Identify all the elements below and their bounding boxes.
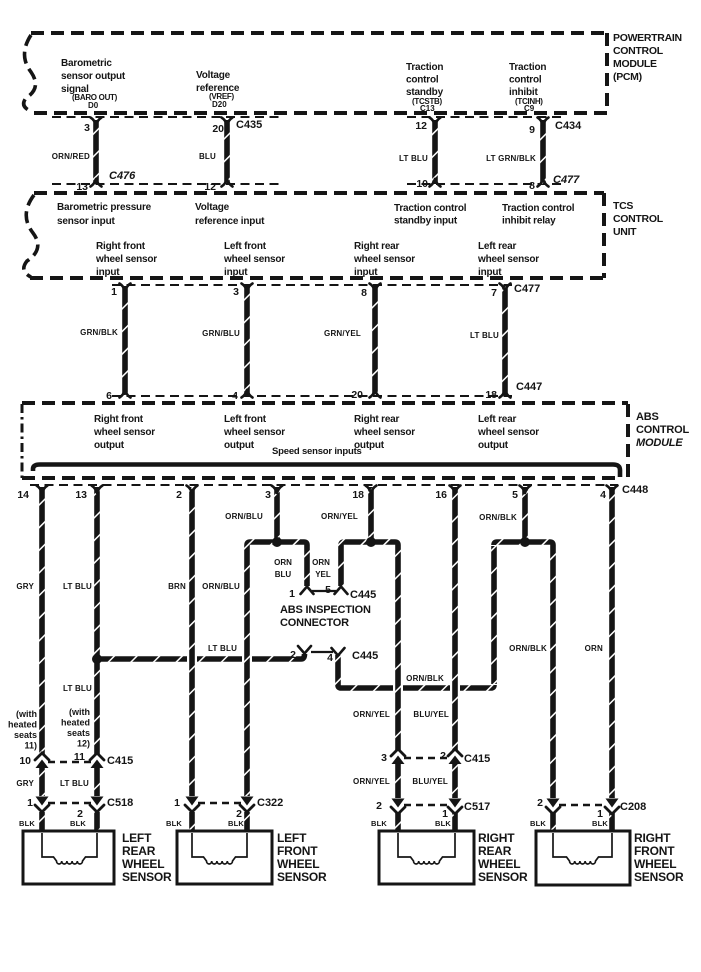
svg-text:18: 18 — [352, 489, 364, 501]
svg-text:GRN/YEL: GRN/YEL — [324, 329, 361, 338]
svg-text:wheel sensor: wheel sensor — [223, 254, 285, 265]
svg-text:wheel sensor: wheel sensor — [223, 427, 285, 438]
svg-text:ORN/YEL: ORN/YEL — [353, 710, 390, 719]
svg-text:C415: C415 — [464, 753, 490, 765]
svg-text:ORN: ORN — [585, 644, 603, 653]
svg-text:C517: C517 — [464, 801, 490, 813]
svg-text:13: 13 — [76, 181, 88, 193]
svg-text:GRY: GRY — [16, 582, 34, 591]
svg-text:12: 12 — [415, 120, 427, 132]
svg-text:3: 3 — [84, 122, 90, 134]
svg-text:12: 12 — [204, 181, 216, 193]
svg-text:C13: C13 — [420, 104, 435, 113]
svg-text:9: 9 — [529, 124, 535, 136]
svg-text:C208: C208 — [620, 801, 646, 813]
svg-text:Right front: Right front — [96, 241, 146, 252]
svg-text:11): 11) — [24, 741, 37, 751]
svg-text:16: 16 — [435, 489, 447, 501]
svg-text:4: 4 — [232, 390, 238, 402]
svg-text:C445: C445 — [352, 650, 378, 662]
svg-text:10: 10 — [19, 755, 31, 767]
svg-text:ORN/YEL: ORN/YEL — [353, 777, 390, 786]
svg-text:C477: C477 — [553, 174, 580, 186]
svg-text:2: 2 — [290, 649, 296, 661]
svg-text:REAR: REAR — [122, 844, 156, 858]
svg-text:standby input: standby input — [394, 216, 458, 227]
svg-text:C445: C445 — [350, 589, 376, 601]
svg-text:BLU/YEL: BLU/YEL — [412, 777, 448, 786]
svg-text:C448: C448 — [622, 484, 648, 496]
svg-text:SENSOR: SENSOR — [277, 870, 327, 884]
svg-text:CONTROL: CONTROL — [613, 213, 664, 225]
svg-text:C447: C447 — [516, 381, 542, 393]
svg-text:8: 8 — [361, 287, 367, 299]
svg-text:18: 18 — [485, 389, 497, 401]
svg-text:output: output — [94, 440, 125, 451]
svg-text:wheel sensor: wheel sensor — [353, 254, 415, 265]
svg-text:ORN/BLU: ORN/BLU — [202, 582, 240, 591]
svg-text:GRN/BLU: GRN/BLU — [202, 329, 240, 338]
svg-text:C477: C477 — [514, 283, 540, 295]
svg-text:POWERTRAIN: POWERTRAIN — [613, 32, 682, 44]
svg-text:Voltage: Voltage — [196, 70, 231, 81]
svg-text:WHEEL: WHEEL — [277, 857, 319, 871]
svg-text:BRN: BRN — [168, 582, 186, 591]
svg-text:sensor output: sensor output — [61, 71, 126, 82]
svg-text:REAR: REAR — [478, 844, 512, 858]
svg-text:C434: C434 — [555, 120, 582, 132]
svg-text:20: 20 — [212, 123, 224, 135]
svg-text:BLK: BLK — [19, 819, 35, 828]
svg-text:input: input — [224, 267, 248, 278]
svg-text:3: 3 — [381, 752, 387, 764]
svg-text:output: output — [478, 440, 509, 451]
svg-text:C476: C476 — [109, 170, 136, 182]
svg-text:SENSOR: SENSOR — [478, 870, 528, 884]
svg-text:Traction: Traction — [509, 62, 546, 73]
svg-text:BLU: BLU — [275, 570, 292, 579]
svg-text:wheel sensor: wheel sensor — [477, 254, 539, 265]
svg-text:seats: seats — [14, 730, 37, 740]
svg-text:ORN/BLK: ORN/BLK — [406, 674, 444, 683]
svg-text:ORN/BLK: ORN/BLK — [479, 513, 517, 522]
svg-text:C435: C435 — [236, 119, 262, 131]
svg-text:1: 1 — [174, 797, 180, 809]
svg-text:RIGHT: RIGHT — [634, 831, 671, 845]
svg-text:Left rear: Left rear — [478, 241, 517, 252]
svg-text:WHEEL: WHEEL — [478, 857, 520, 871]
svg-text:control: control — [406, 75, 439, 86]
svg-text:BLK: BLK — [228, 819, 244, 828]
svg-text:WHEEL: WHEEL — [634, 857, 676, 871]
svg-text:heated: heated — [8, 720, 37, 730]
svg-text:wheel sensor: wheel sensor — [95, 254, 157, 265]
svg-text:RIGHT: RIGHT — [478, 831, 515, 845]
svg-text:WHEEL: WHEEL — [122, 857, 164, 871]
svg-text:wheel sensor: wheel sensor — [477, 427, 539, 438]
svg-text:SENSOR: SENSOR — [634, 870, 684, 884]
svg-text:FRONT: FRONT — [277, 844, 318, 858]
svg-text:TCS: TCS — [613, 200, 633, 212]
svg-text:Traction control: Traction control — [502, 203, 575, 214]
svg-text:LT GRN/BLK: LT GRN/BLK — [486, 154, 536, 163]
svg-text:C415: C415 — [107, 755, 133, 767]
svg-text:MODULE: MODULE — [636, 437, 683, 449]
svg-text:14: 14 — [17, 489, 29, 501]
svg-text:10: 10 — [416, 178, 428, 190]
svg-text:C518: C518 — [107, 797, 133, 809]
svg-text:BLK: BLK — [530, 819, 546, 828]
svg-text:BLK: BLK — [371, 819, 387, 828]
svg-text:UNIT: UNIT — [613, 226, 637, 238]
svg-text:CONTROL: CONTROL — [636, 424, 689, 436]
svg-text:4: 4 — [327, 652, 333, 664]
svg-text:20: 20 — [351, 389, 363, 401]
svg-text:ORN/RED: ORN/RED — [52, 152, 90, 161]
svg-text:Speed sensor inputs: Speed sensor inputs — [272, 446, 362, 457]
svg-text:5: 5 — [512, 489, 518, 501]
svg-text:3: 3 — [265, 489, 271, 501]
svg-text:Right rear: Right rear — [354, 241, 400, 252]
svg-text:ORN/BLK: ORN/BLK — [509, 644, 547, 653]
svg-text:(PCM): (PCM) — [613, 71, 642, 83]
svg-text:8: 8 — [529, 180, 535, 192]
svg-text:LT BLU: LT BLU — [470, 331, 499, 340]
svg-text:6: 6 — [106, 390, 112, 402]
svg-text:LT BLU: LT BLU — [60, 779, 89, 788]
svg-text:inhibit relay: inhibit relay — [502, 216, 556, 227]
svg-text:BLK: BLK — [70, 819, 86, 828]
svg-text:Barometric pressure: Barometric pressure — [57, 202, 152, 213]
svg-text:input: input — [478, 267, 502, 278]
svg-text:ORN: ORN — [312, 558, 330, 567]
svg-text:wheel sensor: wheel sensor — [353, 427, 415, 438]
svg-text:LEFT: LEFT — [122, 831, 152, 845]
svg-text:input: input — [354, 267, 378, 278]
svg-text:2: 2 — [537, 797, 543, 809]
svg-text:GRN/BLK: GRN/BLK — [80, 328, 118, 337]
svg-text:CONTROL: CONTROL — [613, 45, 664, 57]
svg-text:LT BLU: LT BLU — [63, 684, 92, 693]
svg-text:2: 2 — [440, 750, 446, 762]
svg-text:seats: seats — [67, 728, 90, 738]
svg-text:(with: (with — [16, 709, 37, 719]
svg-text:CONNECTOR: CONNECTOR — [280, 617, 349, 629]
svg-text:Voltage: Voltage — [195, 202, 230, 213]
svg-text:12): 12) — [77, 739, 90, 749]
svg-text:control: control — [509, 75, 542, 86]
svg-text:1: 1 — [289, 588, 295, 600]
svg-text:heated: heated — [61, 718, 90, 728]
svg-text:D20: D20 — [212, 100, 227, 109]
svg-text:Barometric: Barometric — [61, 58, 112, 69]
svg-text:3: 3 — [233, 286, 239, 298]
svg-text:1: 1 — [27, 797, 33, 809]
svg-text:LEFT: LEFT — [277, 831, 307, 845]
svg-text:2: 2 — [376, 800, 382, 812]
svg-text:C9: C9 — [524, 104, 535, 113]
svg-text:ORN/YEL: ORN/YEL — [321, 512, 358, 521]
svg-text:Left rear: Left rear — [478, 414, 517, 425]
svg-text:Traction control: Traction control — [394, 203, 467, 214]
svg-text:output: output — [224, 440, 255, 451]
svg-text:wheel sensor: wheel sensor — [93, 427, 155, 438]
svg-text:BLU: BLU — [199, 152, 216, 161]
svg-text:D0: D0 — [88, 101, 99, 110]
svg-text:BLK: BLK — [435, 819, 451, 828]
svg-text:C322: C322 — [257, 797, 283, 809]
svg-text:BLU/YEL: BLU/YEL — [413, 710, 449, 719]
svg-text:ORN: ORN — [274, 558, 292, 567]
svg-text:5: 5 — [325, 584, 331, 596]
svg-text:BLK: BLK — [166, 819, 182, 828]
svg-text:7: 7 — [491, 287, 497, 299]
svg-text:ORN/BLU: ORN/BLU — [225, 512, 263, 521]
svg-text:reference input: reference input — [195, 216, 265, 227]
svg-text:GRY: GRY — [16, 779, 34, 788]
svg-text:11: 11 — [74, 751, 85, 763]
svg-text:FRONT: FRONT — [634, 844, 675, 858]
svg-text:Left front: Left front — [224, 241, 267, 252]
svg-text:LT BLU: LT BLU — [63, 582, 92, 591]
svg-text:input: input — [96, 267, 120, 278]
svg-text:YEL: YEL — [315, 570, 331, 579]
svg-text:BLK: BLK — [592, 819, 608, 828]
svg-text:Left front: Left front — [224, 414, 267, 425]
svg-text:Right rear: Right rear — [354, 414, 400, 425]
svg-text:SENSOR: SENSOR — [122, 870, 172, 884]
svg-text:(with: (with — [69, 707, 90, 717]
svg-text:LT BLU: LT BLU — [208, 644, 237, 653]
svg-text:13: 13 — [75, 489, 87, 501]
svg-text:Right front: Right front — [94, 414, 144, 425]
svg-text:2: 2 — [176, 489, 182, 501]
svg-text:1: 1 — [111, 286, 117, 298]
svg-text:ABS: ABS — [636, 411, 659, 423]
svg-text:4: 4 — [600, 489, 606, 501]
svg-text:MODULE: MODULE — [613, 58, 657, 70]
svg-text:Traction: Traction — [406, 62, 443, 73]
svg-text:sensor input: sensor input — [57, 216, 115, 227]
svg-text:LT BLU: LT BLU — [399, 154, 428, 163]
svg-text:ABS INSPECTION: ABS INSPECTION — [280, 604, 371, 616]
